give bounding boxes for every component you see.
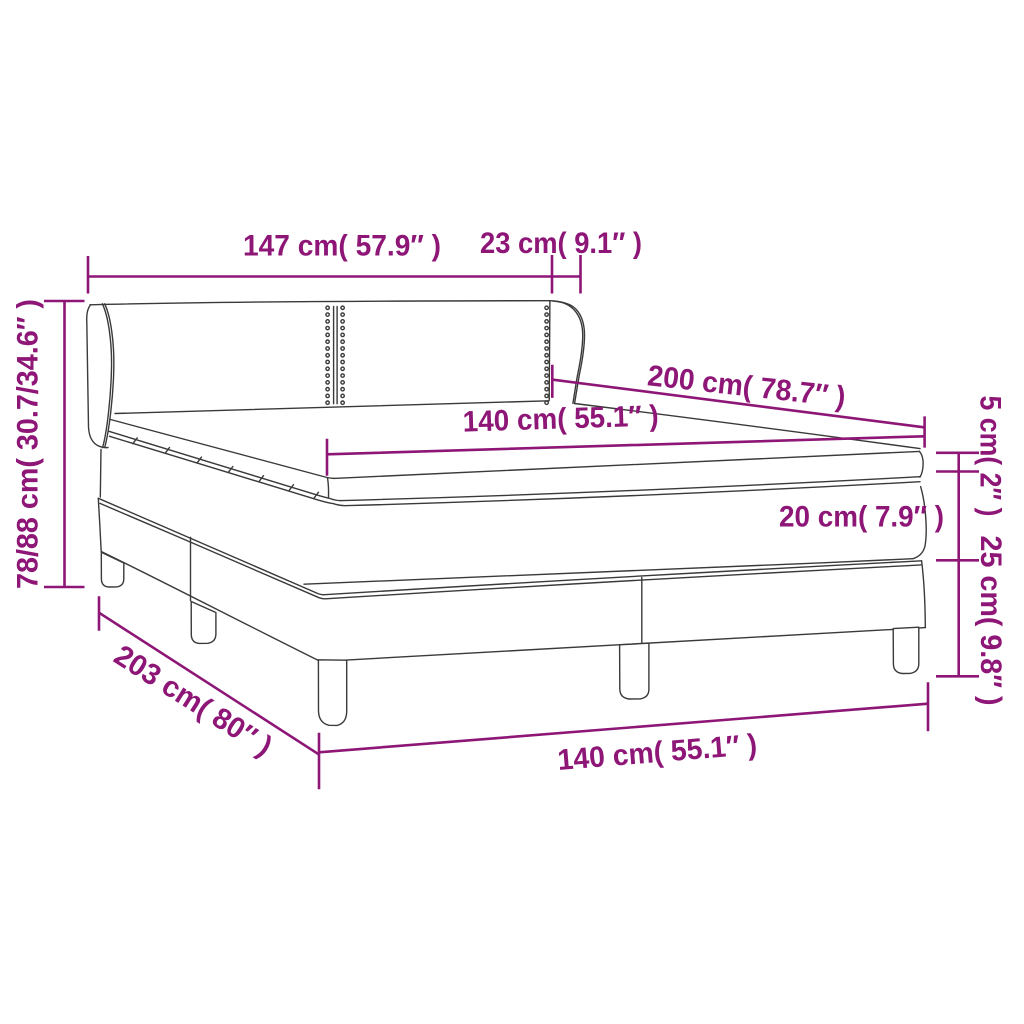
- svg-text:147 cm( 57.9″ ): 147 cm( 57.9″ ): [243, 230, 441, 263]
- svg-text:20 cm( 7.9″ ): 20 cm( 7.9″ ): [779, 501, 944, 534]
- svg-text:25 cm( 9.8″ ): 25 cm( 9.8″ ): [974, 536, 1007, 706]
- svg-text:140 cm( 55.1″ ): 140 cm( 55.1″ ): [462, 399, 659, 438]
- svg-text:23 cm( 9.1″ ): 23 cm( 9.1″ ): [480, 227, 642, 260]
- svg-text:78/88 cm( 30.7/34.6″ ): 78/88 cm( 30.7/34.6″ ): [12, 299, 45, 589]
- svg-text:5 cm( 2″ ): 5 cm( 2″ ): [974, 396, 1007, 517]
